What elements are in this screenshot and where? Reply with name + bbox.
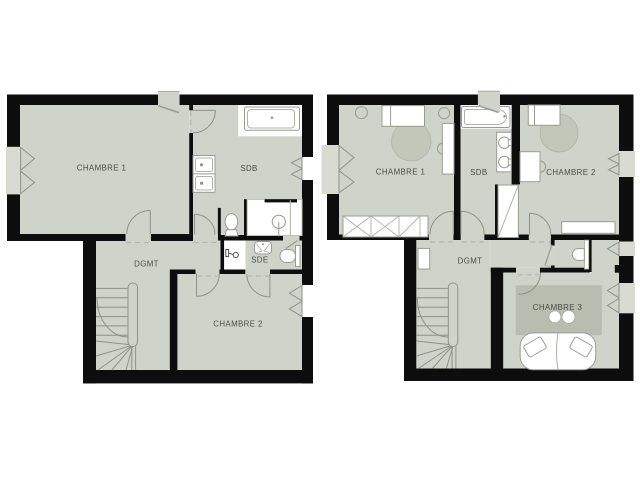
svg-text:CHAMBRE 3: CHAMBRE 3 (533, 303, 583, 312)
svg-text:SDE: SDE (251, 255, 268, 264)
svg-text:SDB: SDB (470, 168, 487, 177)
svg-text:CHAMBRE 1: CHAMBRE 1 (77, 163, 126, 172)
svg-text:CHAMBRE 2: CHAMBRE 2 (546, 168, 595, 177)
svg-text:CHAMBRE 2: CHAMBRE 2 (213, 319, 262, 328)
svg-text:SDB: SDB (240, 164, 257, 173)
svg-text:CHAMBRE 1: CHAMBRE 1 (376, 167, 425, 176)
svg-text:DGMT: DGMT (134, 259, 159, 268)
svg-text:DGMT: DGMT (458, 256, 483, 265)
